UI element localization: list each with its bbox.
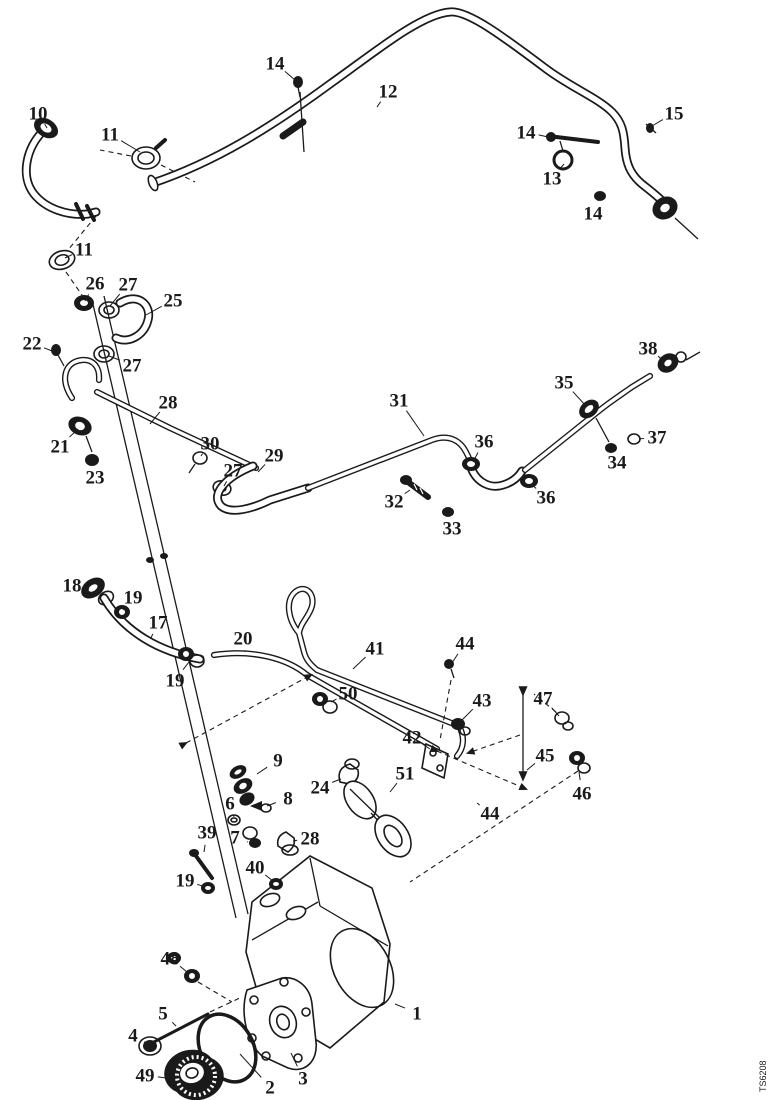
- part-clamp-21: [66, 413, 95, 452]
- part-bolt-44-upper: [440, 659, 454, 740]
- callout-31: 31: [390, 391, 409, 412]
- callout-33: 33: [443, 519, 462, 540]
- part-clamp-11-lower: [47, 247, 77, 272]
- callout-27: 27: [123, 356, 143, 377]
- callout-29: 29: [265, 446, 284, 467]
- leader-line-43: [461, 709, 473, 721]
- part-washer-19-low: [201, 882, 215, 894]
- callout-5: 5: [158, 1004, 168, 1025]
- leader-line-44: [452, 654, 458, 663]
- part-clamp-26: [74, 295, 94, 311]
- callout-11: 11: [101, 125, 119, 146]
- callout-27: 27: [119, 275, 139, 296]
- callout-11: 11: [75, 240, 93, 261]
- callout-10: 10: [29, 104, 48, 125]
- part-governor-51: [337, 775, 418, 863]
- callout-27: 27: [224, 461, 244, 482]
- leader-line-51: [390, 783, 397, 792]
- part-fitting-46: [569, 751, 590, 773]
- leader-line-41: [353, 657, 366, 669]
- callout-48: 48: [161, 949, 180, 970]
- callout-1: 1: [412, 1004, 422, 1025]
- part-clip-30: [189, 452, 207, 473]
- part-nut-14-low: [594, 191, 606, 201]
- callout-41: 41: [366, 639, 385, 660]
- part-bracket-42: [422, 744, 448, 778]
- exploded-parts-diagram: 1011141214131415112627252227282123302729…: [0, 0, 778, 1100]
- callout-22: 22: [23, 334, 42, 355]
- callout-18: 18: [63, 576, 82, 597]
- leader-line-17: [151, 634, 153, 638]
- callout-13: 13: [543, 169, 562, 190]
- part-elbow-24: [339, 759, 359, 784]
- callout-49: 49: [136, 1066, 155, 1087]
- leader-line-40: [265, 875, 273, 881]
- leader-line-19: [183, 662, 189, 670]
- callout-44: 44: [481, 804, 501, 825]
- callout-9: 9: [273, 751, 283, 772]
- part-fitting-36-right: [520, 474, 538, 488]
- callout-4: 4: [128, 1026, 138, 1047]
- callout-32: 32: [385, 492, 404, 513]
- callout-2: 2: [265, 1078, 275, 1099]
- leader-line-44: [477, 803, 480, 805]
- diagram-page: 1011141214131415112627252227282123302729…: [0, 0, 778, 1100]
- callout-21: 21: [51, 437, 70, 458]
- callout-23: 23: [86, 468, 105, 489]
- callout-30: 30: [201, 434, 220, 455]
- part-fitting-36-left: [462, 457, 480, 471]
- callout-46: 46: [573, 784, 592, 805]
- part-clip-13: [548, 136, 598, 169]
- part-elbow-28: [278, 832, 298, 855]
- callout-19: 19: [166, 671, 185, 692]
- leader-line-1: [395, 1004, 405, 1008]
- part-ferrule-38: [654, 349, 700, 376]
- leader-line-35: [573, 392, 586, 406]
- part-fitting-7: [243, 827, 261, 848]
- leader-line-22: [44, 348, 52, 351]
- part-hose-25: [116, 299, 149, 340]
- callout-43: 43: [473, 691, 492, 712]
- leader-line-37: [639, 438, 644, 439]
- callout-19: 19: [124, 588, 143, 609]
- callout-44: 44: [456, 634, 476, 655]
- leader-line-11: [121, 141, 140, 152]
- callout-36: 36: [537, 488, 556, 509]
- callout-36: 36: [475, 432, 494, 453]
- part-fitting-43: [451, 718, 470, 735]
- callout-39: 39: [198, 823, 217, 844]
- callout-12: 12: [379, 82, 398, 103]
- leader-line-31: [406, 411, 424, 436]
- callout-14: 14: [584, 204, 604, 225]
- callout-14: 14: [266, 54, 286, 75]
- callout-28: 28: [301, 829, 320, 850]
- leader-line-39: [204, 845, 205, 852]
- callout-28: 28: [159, 393, 178, 414]
- callout-19: 19: [176, 871, 195, 892]
- leader-line-12: [377, 102, 381, 107]
- leader-line-15: [652, 120, 663, 126]
- part-washer-8: [250, 801, 271, 812]
- callout-38: 38: [639, 339, 658, 360]
- callout-3: 3: [298, 1069, 308, 1090]
- callout-15: 15: [665, 104, 684, 125]
- callout-50: 50: [339, 684, 358, 705]
- part-gear-49: [159, 1044, 229, 1100]
- part-tube-41: [289, 589, 463, 756]
- doc-code: TS6208: [758, 1060, 768, 1092]
- leader-line-9: [257, 767, 267, 774]
- callout-51: 51: [396, 764, 415, 785]
- callout-14: 14: [517, 123, 537, 144]
- callout-20: 20: [234, 629, 253, 650]
- callout-45: 45: [536, 746, 555, 767]
- callout-26: 26: [86, 274, 105, 295]
- part-hose-12: [146, 12, 664, 203]
- callout-25: 25: [164, 291, 183, 312]
- part-nut-34: [605, 443, 617, 453]
- callout-7: 7: [230, 828, 240, 849]
- callout-24: 24: [311, 778, 331, 799]
- leader-line-48: [180, 966, 187, 972]
- leader-line-5: [172, 1022, 176, 1026]
- axis-line-20: [186, 675, 311, 743]
- callout-37: 37: [648, 428, 668, 449]
- callout-40: 40: [246, 858, 265, 879]
- part-bolt-22: [51, 344, 64, 366]
- callout-6: 6: [225, 794, 235, 815]
- leader-line-14: [285, 71, 295, 80]
- leader-line-45: [527, 763, 535, 770]
- leader-line-46: [579, 772, 580, 780]
- callout-8: 8: [283, 789, 293, 810]
- callout-35: 35: [555, 373, 574, 394]
- callout-34: 34: [608, 453, 628, 474]
- leader-line-32: [405, 490, 410, 494]
- callout-42: 42: [403, 728, 422, 749]
- part-hose-10: [26, 113, 96, 298]
- callout-17: 17: [149, 613, 169, 634]
- callout-47: 47: [534, 689, 554, 710]
- part-fitting-50: [312, 692, 337, 713]
- part-washer-37: [628, 434, 640, 444]
- part-bolt-32: [400, 475, 428, 497]
